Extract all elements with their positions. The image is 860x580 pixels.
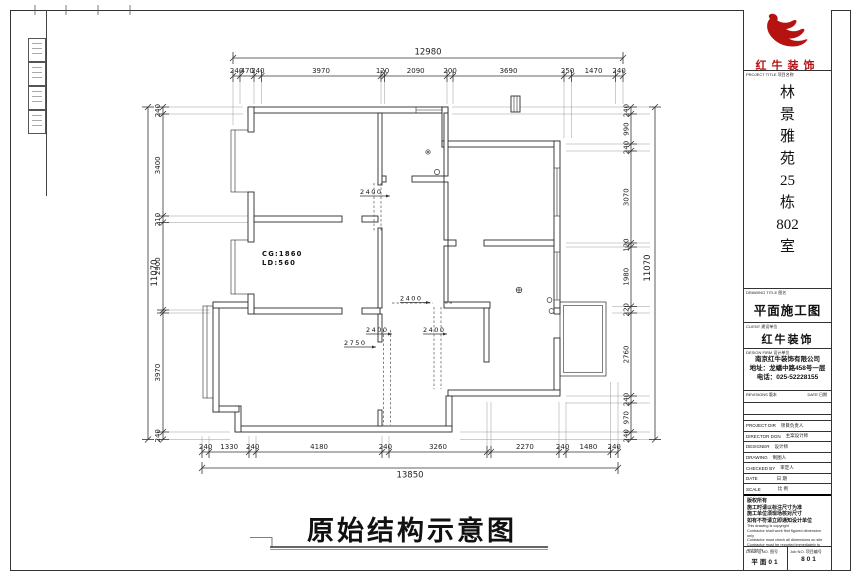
drawing-no-label: Drawing NO. 图号 <box>744 548 787 554</box>
personnel-label-cn: 比 例 <box>778 486 788 492</box>
design-firm-section: DESIGN FIRM 设计单位 南京红牛装饰有限公司 地址：龙蟠中路458号一… <box>744 348 831 390</box>
frame-ticks <box>35 5 130 15</box>
personnel-row: DATE 日 期 <box>744 474 831 485</box>
annotation-text: 2400 <box>366 326 389 334</box>
project-name-vertical: 林 景 雅 苑 25 栋 802 室 <box>744 82 831 258</box>
design-firm-address: 地址：龙蟠中路458号一层 <box>744 364 831 373</box>
dim-label: 240 <box>612 67 625 75</box>
note-line-en: Contractor shall work first figured dime… <box>747 529 828 539</box>
dim-label: 3260 <box>429 443 447 451</box>
dim-label: 240 <box>379 443 392 451</box>
personnel-label-en: PROJECT DIR <box>746 423 776 428</box>
floor-plan-svg: 12980 240 470 240 3970 120 2090 200 3690… <box>0 0 745 580</box>
extension-lines <box>168 82 650 448</box>
bull-logo-icon <box>762 13 814 51</box>
dim-label: 12980 <box>414 48 441 58</box>
annotation-text: 2400 <box>400 295 423 303</box>
date-label: DATE 日期 <box>808 392 827 402</box>
dim-label: 240 <box>556 443 569 451</box>
dim-label: 240 <box>251 67 264 75</box>
personnel-label-en: DIRECTOR DGN <box>746 434 781 439</box>
title-bracket <box>250 538 272 548</box>
dim-label: 210 <box>154 213 162 226</box>
project-name-char: 栋 <box>780 192 795 214</box>
personnel-row: CHECKED BY 审定人 <box>744 463 831 474</box>
dim-label: 240 <box>623 393 631 406</box>
personnel-row: SCALE 比 例 <box>744 484 831 494</box>
dim-label: 240 <box>154 104 162 117</box>
annotation-text: 2750 <box>344 339 367 347</box>
notes-section: 版权所有 施工时请以标注尺寸为准 施工单位须现场核对尺寸 如有不符请立即通知设计… <box>744 494 831 546</box>
annotation-text: CG:1860 <box>262 250 303 258</box>
project-name-char: 雅 <box>780 126 795 148</box>
project-title-section: PROJECT TITLE 项目名称 <box>744 70 831 82</box>
dim-label: 120 <box>623 238 631 251</box>
personnel-row: DESIGNER 设计师 <box>744 442 831 453</box>
number-section: Drawing NO. 图号 平面01 Job NO. 项目编号 801 <box>744 546 831 570</box>
client-value: 红牛装饰 <box>744 331 831 347</box>
personnel-row: DRAWING 制图人 <box>744 453 831 464</box>
dim-label: 200 <box>443 67 456 75</box>
dim-label: 3070 <box>623 188 631 206</box>
drawing-no-value: 平面01 <box>744 556 787 566</box>
job-no-cell: Job NO. 项目编号 801 <box>788 547 831 570</box>
personnel-row: PROJECT DIR 项目负责人 <box>744 421 831 432</box>
title-block: 红牛装饰 PROJECT TITLE 项目名称 林 景 雅 苑 25 栋 802… <box>743 10 832 570</box>
drawing-title-label: DRAWING TITLE 图名 <box>744 289 831 295</box>
dim-label: 240 <box>623 104 631 117</box>
personnel-label-cn: 制图人 <box>773 455 787 461</box>
drawing-no-cell: Drawing NO. 图号 平面01 <box>744 547 788 570</box>
dim-label: 250 <box>561 67 574 75</box>
annotation-text: 2400 <box>423 326 446 334</box>
personnel-label-en: DATE <box>746 476 758 481</box>
dim-label: 3690 <box>500 67 518 75</box>
client-label: CLIENT 建设单位 <box>744 323 831 329</box>
dim-label: 3970 <box>312 67 330 75</box>
dim-label: 1470 <box>585 67 603 75</box>
drawing-title-section: DRAWING TITLE 图名 平面施工图 <box>744 288 831 322</box>
dim-label: 11070 <box>643 254 653 281</box>
project-name-char: 景 <box>780 104 795 126</box>
revision-row-empty <box>744 402 831 414</box>
sheet-title-group: 原始结构示意图 <box>250 515 548 550</box>
dim-label: 240 <box>154 429 162 442</box>
dim-label: 13850 <box>396 471 423 481</box>
annotation-text: 2400 <box>360 188 383 196</box>
revisions-section: REVISIONS 版本 DATE 日期 <box>744 390 831 420</box>
personnel-label-en: DESIGNER <box>746 444 770 449</box>
dim-label: 4180 <box>310 443 328 451</box>
personnel-label-en: DRAWING <box>746 455 768 460</box>
dim-label: 990 <box>623 122 631 135</box>
project-name-char: 苑 <box>780 148 795 170</box>
personnel-label-cn: 设计师 <box>775 444 789 450</box>
revisions-label: REVISIONS 版本 <box>746 392 777 402</box>
personnel-label-cn: 审定人 <box>780 465 794 471</box>
project-title-label: PROJECT TITLE 项目名称 <box>744 71 831 77</box>
annotations: 2400 2400 2400 2400 2750 CG:1860 LD:560 <box>262 188 446 347</box>
personnel-section: PROJECT DIR 项目负责人 DIRECTOR DGN 主案设计师 DES… <box>744 420 831 494</box>
dim-label: 3970 <box>154 364 162 382</box>
project-name-char: 802 <box>776 214 799 236</box>
job-no-label: Job NO. 项目编号 <box>788 548 831 554</box>
dim-label: 120 <box>376 67 389 75</box>
dim-label: 3400 <box>154 156 162 174</box>
design-firm-phone: 电话：025-52228155 <box>744 373 831 382</box>
personnel-label-en: SCALE <box>746 487 761 492</box>
dim-label: 1980 <box>623 268 631 286</box>
dim-label: 2090 <box>407 67 425 75</box>
project-name-char: 25 <box>780 170 795 192</box>
personnel-label-cn: 日 期 <box>777 476 787 482</box>
project-name-char: 林 <box>780 82 795 104</box>
dim-label: 220 <box>623 303 631 316</box>
dim-label: 1480 <box>579 443 597 451</box>
job-no-value: 801 <box>788 556 831 563</box>
dim-label: 2760 <box>623 346 631 364</box>
design-firm-name: 南京红牛装饰有限公司 <box>744 355 831 364</box>
dim-label: 1330 <box>220 443 238 451</box>
dim-label: 970 <box>623 411 631 424</box>
dim-label: 240 <box>623 141 631 154</box>
dim-label: 11070 <box>150 259 160 286</box>
project-name-char: 室 <box>780 236 795 258</box>
dim-label: 240 <box>623 429 631 442</box>
sheet-title: 原始结构示意图 <box>307 515 517 547</box>
personnel-label-cn: 主案设计师 <box>786 433 809 439</box>
annotation-text: LD:560 <box>262 259 296 267</box>
drawing-title-value: 平面施工图 <box>744 300 831 319</box>
opening-dashes <box>374 183 453 425</box>
drawing-sheet: 12980 240 470 240 3970 120 2090 200 3690… <box>0 0 860 580</box>
dim-label: 2270 <box>516 443 534 451</box>
dim-label: 240 <box>199 443 212 451</box>
personnel-row: DIRECTOR DGN 主案设计师 <box>744 432 831 443</box>
client-section: CLIENT 建设单位 红牛装饰 <box>744 322 831 348</box>
dim-label: 240 <box>246 443 259 451</box>
personnel-label-cn: 项目负责人 <box>781 423 804 429</box>
company-logo: 红牛装饰 <box>744 10 831 70</box>
personnel-label-en: CHECKED BY <box>746 466 775 471</box>
dim-label: 240 <box>608 443 621 451</box>
